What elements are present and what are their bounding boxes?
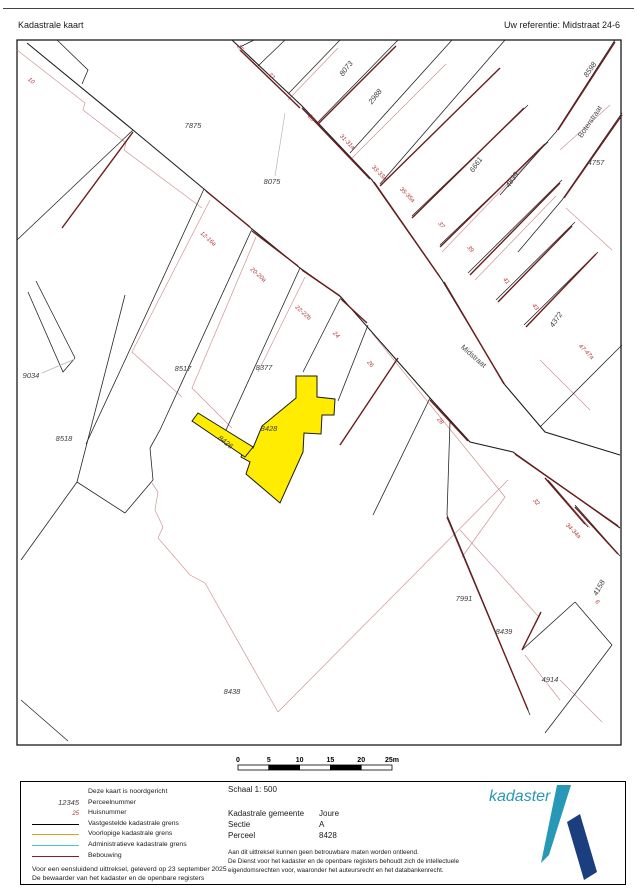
scale-bar-segment xyxy=(330,765,361,770)
legend-label: Vastgestelde kadastrale grens xyxy=(88,819,179,829)
legend-empty-swatch xyxy=(32,787,79,797)
perceel-label: Perceel xyxy=(228,831,255,840)
cadastral-map: .kb{stroke:#1f1f1f;stroke-width:1.1} .k{… xyxy=(0,0,637,760)
scale-tick-5: 5 xyxy=(267,757,271,764)
scale-text: Schaal 1: 500 xyxy=(228,785,277,794)
kadaster-wordmark: kadaster xyxy=(489,788,551,805)
parcel-number-8377: 8377 xyxy=(256,363,274,372)
fine-print-line: De Dienst voor het kadaster en de openba… xyxy=(228,858,459,865)
scale-bar-segment xyxy=(269,765,300,770)
legend-line-swatch xyxy=(32,840,79,850)
scale-tick-15: 15 xyxy=(327,757,335,764)
fine-print-line: eigendomsrechten voor, waaronder het aut… xyxy=(228,867,444,874)
map-frame xyxy=(17,40,621,745)
sample-house-number: 25 xyxy=(72,809,79,819)
parcel-number-8428: 8428 xyxy=(261,424,279,433)
parcel-number-8439: 8439 xyxy=(496,627,514,636)
parcel-number-8517: 8517 xyxy=(175,364,193,373)
legend-label: Voorlopige kadastrale grens xyxy=(88,829,172,839)
legend-line-swatch xyxy=(32,829,79,839)
legend-line-swatch xyxy=(32,851,79,861)
sample-parcel-number: 12345 xyxy=(58,798,79,808)
scale-bar: 0510152025m xyxy=(230,751,410,775)
scale-tick-0: 0 xyxy=(236,757,240,764)
parcel-number-7875: 7875 xyxy=(185,121,203,130)
kadaster-extract-page: Kadastrale kaart Uw referentie: Midstraa… xyxy=(0,0,637,892)
parcel-number-sample: 12345 xyxy=(32,798,79,808)
legend-label: Deze kaart is noordgericht xyxy=(88,787,167,797)
legend-line xyxy=(32,834,79,835)
logo-k-leg xyxy=(567,814,597,880)
parcel-number-9034: 9034 xyxy=(23,371,40,380)
parcel-number-4914: 4914 xyxy=(542,675,559,684)
legend-footer-line: Voor een eensluidend uittreksel, gelever… xyxy=(32,866,227,873)
legend-label: Perceelnummer xyxy=(88,798,136,808)
legend-label: Bebouwing xyxy=(88,851,122,861)
gemeente-value: Joure xyxy=(319,809,339,818)
scale-tick-20: 20 xyxy=(357,757,365,764)
fine-print-line: Aan dit uittreksel kunnen geen betrouwba… xyxy=(228,849,419,856)
scale-tick-25m: 25m xyxy=(385,757,399,764)
perceel-value: 8428 xyxy=(319,831,337,840)
scale-bar-segment xyxy=(361,765,392,770)
house-number-sample: 25 xyxy=(32,808,79,818)
parcel-number-8075: 8075 xyxy=(264,177,282,186)
sectie-label: Sectie xyxy=(228,820,250,829)
legend-line xyxy=(32,856,79,857)
legend-line xyxy=(32,845,79,846)
gemeente-label: Kadastrale gemeente xyxy=(228,809,304,818)
legend-line-swatch xyxy=(32,819,79,829)
kadaster-logo: kadaster xyxy=(480,783,625,882)
legend-label: Administratieve kadastrale grens xyxy=(88,840,187,850)
sectie-value: A xyxy=(319,820,324,829)
parcel-number-8438: 8438 xyxy=(224,687,242,696)
legend-line xyxy=(32,824,79,825)
parcel-number-7991: 7991 xyxy=(456,594,473,603)
scale-bar-segment xyxy=(238,765,269,770)
legend-footer-line: De bewaarder van het kadaster en de open… xyxy=(32,875,204,882)
scale-tick-10: 10 xyxy=(296,757,304,764)
parcel-number-4757: 4757 xyxy=(588,158,606,167)
legend-label: Huisnummer xyxy=(88,808,127,818)
parcel-number-8518: 8518 xyxy=(56,434,74,443)
scale-bar-segment xyxy=(300,765,331,770)
